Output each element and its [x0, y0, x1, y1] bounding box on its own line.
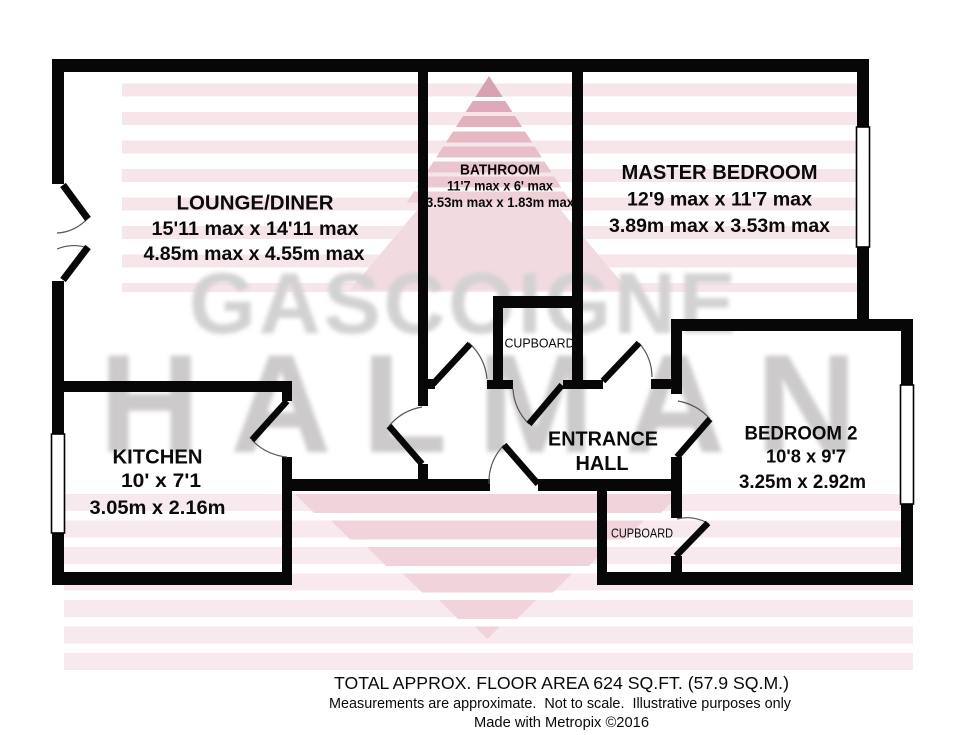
svg-text:MASTER BEDROOM: MASTER BEDROOM: [622, 161, 818, 184]
svg-text:10'8 x 9'7: 10'8 x 9'7: [766, 447, 846, 467]
svg-text:ENTRANCE: ENTRANCE: [548, 429, 658, 451]
svg-text:3.05m x 2.16m: 3.05m x 2.16m: [90, 497, 226, 519]
svg-text:HALL: HALL: [576, 453, 629, 475]
svg-text:LOUNGE/DINER: LOUNGE/DINER: [177, 192, 334, 215]
svg-text:CUPBOARD: CUPBOARD: [505, 337, 575, 351]
svg-text:CUPBOARD: CUPBOARD: [611, 527, 673, 541]
svg-text:12'9 max x 11'7 max: 12'9 max x 11'7 max: [627, 189, 812, 211]
svg-text:10' x 7'1: 10' x 7'1: [121, 471, 201, 492]
svg-text:BATHROOM: BATHROOM: [460, 162, 540, 179]
svg-text:3.25m x 2.92m: 3.25m x 2.92m: [739, 472, 866, 493]
svg-text:Measurements are approximate.: Measurements are approximate. Not to sca…: [329, 696, 792, 712]
svg-text:TOTAL APPROX. FLOOR AREA 624 S: TOTAL APPROX. FLOOR AREA 624 SQ.FT. (57.…: [334, 673, 789, 693]
svg-text:KITCHEN: KITCHEN: [113, 447, 203, 469]
svg-text:BEDROOM 2: BEDROOM 2: [745, 423, 858, 445]
svg-text:4.85m max x 4.55m max: 4.85m max x 4.55m max: [144, 243, 365, 265]
svg-text:11'7 max x 6' max: 11'7 max x 6' max: [447, 178, 553, 194]
svg-text:15'11 max x 14'11 max: 15'11 max x 14'11 max: [152, 218, 359, 240]
svg-text:3.89m max x 3.53m max: 3.89m max x 3.53m max: [609, 215, 830, 237]
svg-text:Made with Metropix ©2016: Made with Metropix ©2016: [474, 715, 649, 731]
svg-text:3.53m max x 1.83m max: 3.53m max x 1.83m max: [426, 194, 574, 210]
